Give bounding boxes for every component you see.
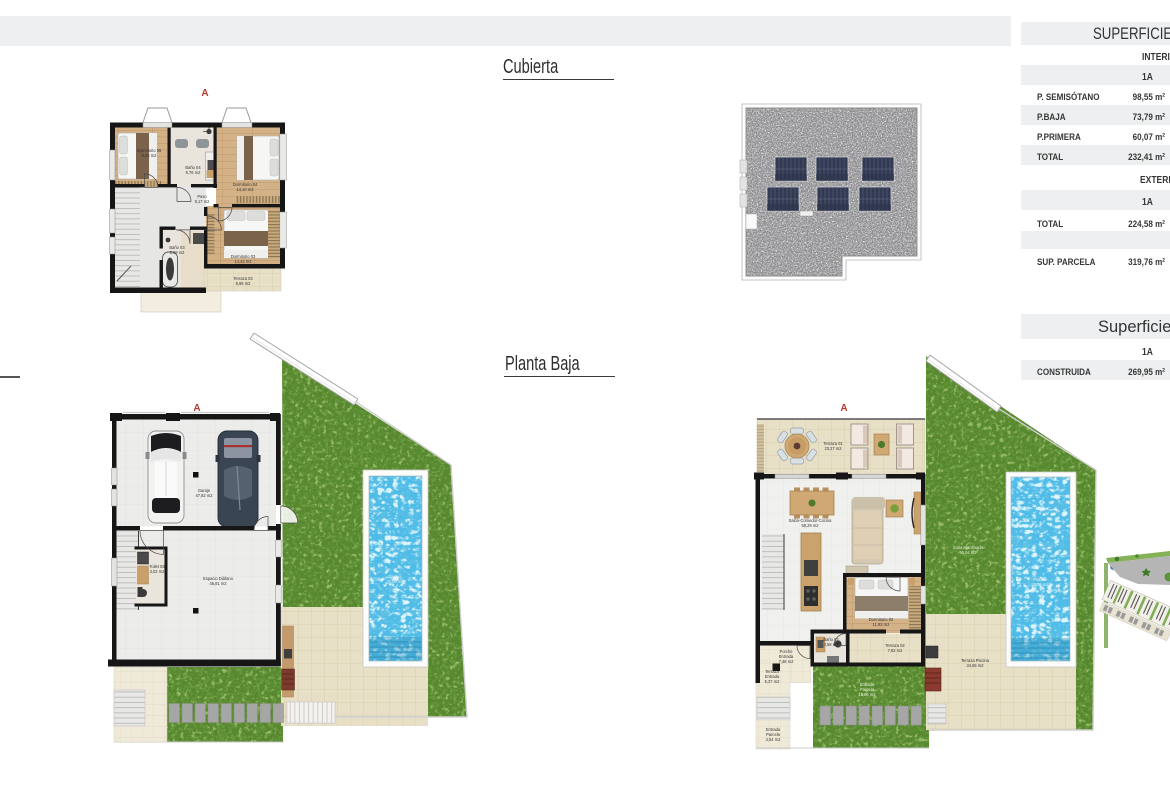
svg-text:9,03 m2: 9,03 m2 [142,153,158,158]
svg-text:95,04 m2: 95,04 m2 [959,550,977,555]
svg-text:30,00 m2: 30,00 m2 [386,579,404,584]
svg-text:11,92 m2: 11,92 m2 [873,622,890,627]
svg-text:46,81 m2: 46,81 m2 [209,581,227,586]
svg-text:23,27 m2: 23,27 m2 [824,446,842,451]
svg-text:3,58 m2: 3,58 m2 [824,642,840,647]
svg-text:14,42 m2: 14,42 m2 [234,259,252,264]
svg-text:9,17 m2: 9,17 m2 [195,199,211,204]
svg-text:6,76 m2: 6,76 m2 [186,170,202,175]
svg-text:47,82 m2: 47,82 m2 [195,493,213,498]
svg-text:3,02 m2: 3,02 m2 [150,569,166,574]
svg-text:4,54 m2: 4,54 m2 [766,737,782,742]
svg-text:58,29 m2: 58,29 m2 [801,523,819,528]
svg-text:7,48 m2: 7,48 m2 [779,659,795,664]
svg-text:A: A [840,403,847,414]
svg-text:7,82 m2: 7,82 m2 [888,648,904,653]
svg-text:A: A [201,88,208,99]
svg-text:5,37 m2: 5,37 m2 [765,679,781,684]
svg-text:14,10 m2: 14,10 m2 [236,187,254,192]
svg-text:34,65 m2: 34,65 m2 [966,663,984,668]
svg-text:9,96 m2: 9,96 m2 [236,281,252,286]
svg-text:30,00 m2: 30,00 m2 [1031,582,1049,587]
svg-text:5,69 m2: 5,69 m2 [170,250,186,255]
svg-text:15,04 m2: 15,04 m2 [858,692,876,697]
